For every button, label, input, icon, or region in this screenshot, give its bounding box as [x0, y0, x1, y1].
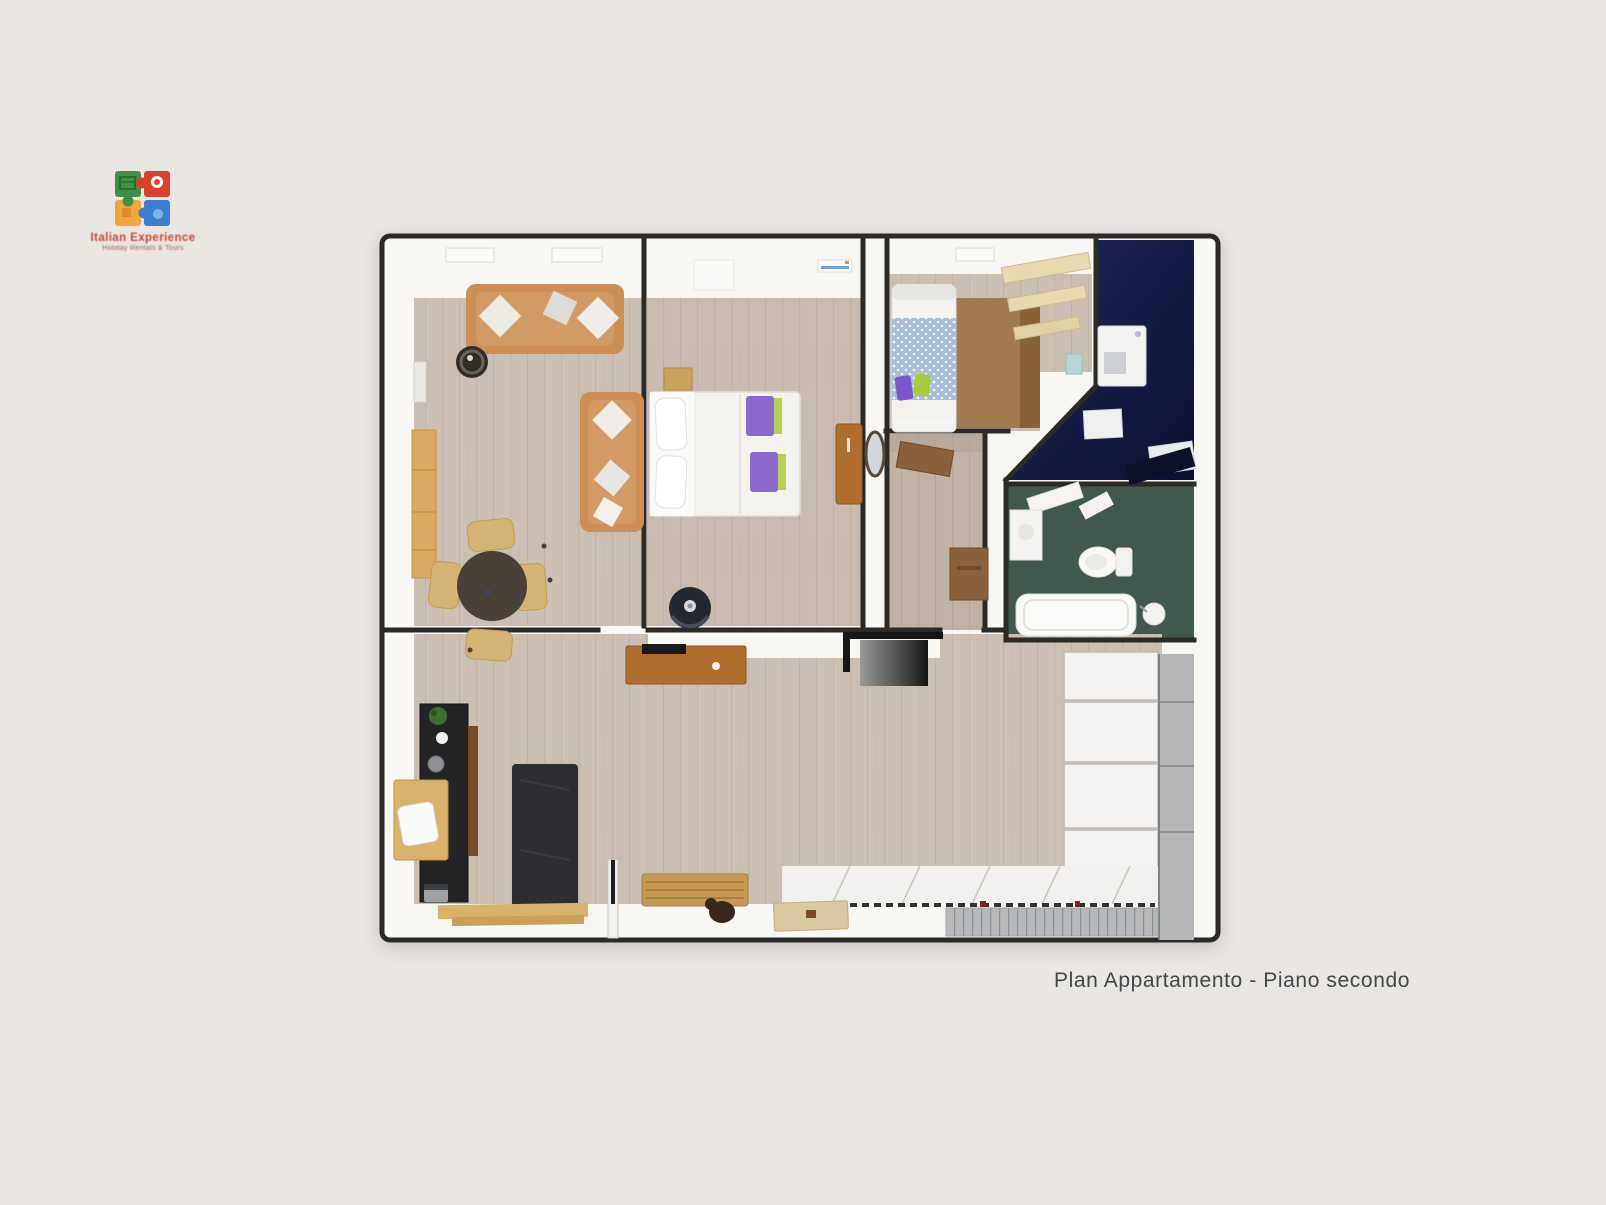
bowl: [436, 732, 448, 744]
side-table: [456, 346, 488, 378]
toilet: [1079, 547, 1132, 577]
closet-panel: [1064, 764, 1158, 828]
plant: [429, 707, 447, 725]
wall-shelf: [412, 430, 436, 578]
wall-art: [414, 362, 426, 402]
round-stool: [1143, 603, 1165, 625]
grated-floor-strip: [946, 908, 1158, 936]
dresser: [836, 424, 862, 504]
purple-runner: [750, 452, 778, 492]
closet-panel: [1064, 652, 1158, 700]
plan-caption: Plan Appartamento - Piano secondo: [1054, 969, 1454, 993]
pillow: [655, 455, 688, 508]
purple-runner: [746, 396, 774, 436]
purple-pillow: [894, 375, 913, 401]
wall-art: [1066, 354, 1082, 374]
closet-panel: [1064, 702, 1158, 762]
bathtub: [1016, 594, 1136, 636]
ceiling-hatch: [694, 260, 734, 290]
window: [552, 248, 602, 262]
wall-mirror: [866, 432, 884, 476]
laptop: [642, 644, 686, 654]
door-panel: [950, 548, 988, 600]
nightstand: [664, 368, 692, 390]
side-desk: [394, 780, 448, 860]
sink: [1010, 510, 1042, 560]
sloped-gray-panels: [1158, 654, 1194, 940]
pot: [428, 756, 444, 772]
sofa: [466, 284, 624, 354]
console-desk: [626, 644, 746, 684]
robot-vacuum: [669, 587, 711, 629]
washer: [1098, 326, 1146, 386]
white-cabinet: [1083, 409, 1122, 439]
window: [956, 248, 994, 261]
single-bed: [892, 284, 956, 432]
dining-table: [457, 551, 527, 621]
double-bed: [650, 392, 800, 516]
wall-stub: [608, 860, 618, 938]
floor-plan-rendering: [0, 0, 1606, 1205]
white-chair: [397, 801, 439, 847]
closet-wall: [1064, 652, 1158, 898]
floor-plan: [0, 0, 1606, 1205]
bench: [642, 874, 748, 906]
armchair: [580, 392, 644, 532]
dining-chair: [467, 518, 516, 553]
dining-chair: [465, 628, 513, 661]
page-background: { "page": { "background_color": "#e9e6e1…: [0, 0, 1606, 1205]
window: [446, 248, 494, 262]
doormat: [774, 901, 849, 932]
pillow: [655, 397, 688, 450]
green-pillow: [913, 373, 931, 397]
